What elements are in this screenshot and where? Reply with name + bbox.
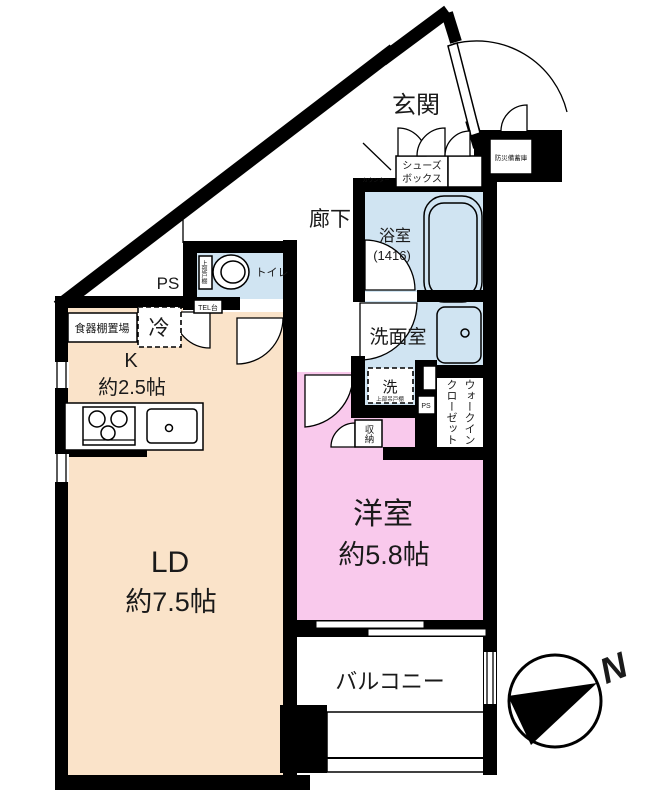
disaster-storage-door <box>501 105 527 131</box>
balcony-rail <box>327 712 487 772</box>
compass: N <box>508 644 634 747</box>
floorplan: 玄関 廊下 シューズ ボックス カウンター 防災備蓄庫 浴室 (1416) トイ… <box>0 0 666 800</box>
living-size-label: 約7.5帖 <box>125 587 217 617</box>
washer-shelf-label: 上部吊戸棚 <box>376 395 404 403</box>
wall-wic-top <box>437 365 497 378</box>
shoes-door-3 <box>445 131 470 156</box>
kitchen-label: K <box>124 350 138 372</box>
wall-entry-stub-top <box>447 13 456 42</box>
fridge-label: 冷 <box>149 317 170 340</box>
wic-label-1: ウォークイン <box>463 379 475 445</box>
genkan-label: 玄関 <box>392 92 440 119</box>
toilet-shelf-label: 上部戸棚 <box>200 259 207 285</box>
entry-counter-line <box>363 143 391 170</box>
wall-washer-bottom <box>351 405 420 418</box>
bath-size-label: (1416) <box>373 248 411 263</box>
entrance-door-leaf <box>448 43 480 136</box>
wall-diagonal-upper <box>382 11 448 60</box>
niche-box <box>423 366 436 390</box>
wall-divider <box>283 240 297 775</box>
dish-shelf-label: 食器棚置場 <box>75 321 130 335</box>
washroom-label: 洗面室 <box>369 326 426 348</box>
wall-kitchen-top <box>57 296 197 308</box>
shoes-label-1: シューズ <box>402 159 442 172</box>
tel-label: TEL台 <box>198 303 218 312</box>
disaster-label: 防災備蓄庫 <box>495 153 528 162</box>
wic-label-2: クローゼット <box>445 379 458 445</box>
ps-small-label: PS <box>421 403 431 410</box>
north-label: N <box>594 644 634 692</box>
floorplan-svg: 玄関 廊下 シューズ ボックス カウンター 防災備蓄庫 浴室 (1416) トイ… <box>0 0 666 800</box>
storage-label: 収納 <box>363 424 375 445</box>
shoes-door-2 <box>417 128 445 156</box>
wall-toilet-top <box>183 241 297 253</box>
bedroom-size-label: 約5.8帖 <box>338 540 430 570</box>
ps-label: PS <box>157 274 180 293</box>
wall-wic-bottom <box>383 447 497 460</box>
counter-note-label: カウンター <box>362 176 390 184</box>
kitchen-size-label: 約2.5帖 <box>98 376 166 399</box>
toilet-bowl <box>213 255 249 289</box>
bedroom-slider-1 <box>316 621 424 628</box>
living-label: LD <box>151 546 189 579</box>
wall-bath-left <box>353 186 365 302</box>
wall-bottom-ld <box>55 775 310 790</box>
living-kitchen-floor <box>63 301 283 775</box>
bedroom-label: 洋室 <box>353 498 413 531</box>
toilet-label: トイレ <box>256 267 289 279</box>
balcony-wall-window <box>484 652 496 704</box>
window-left-2 <box>54 454 69 482</box>
wall-bath-bottom-left <box>353 290 365 302</box>
balcony-left-block <box>280 705 327 773</box>
bedroom-slider-2 <box>368 629 486 636</box>
hallway-label: 廊下 <box>309 208 351 231</box>
window-left-1 <box>54 362 69 388</box>
washer-label: 洗 <box>382 379 397 396</box>
shoes-label-2: ボックス <box>402 173 442 185</box>
balcony-label: バルコニー <box>335 669 445 694</box>
bath-label: 浴室 <box>379 227 411 245</box>
shoes-box-2 <box>448 156 482 187</box>
